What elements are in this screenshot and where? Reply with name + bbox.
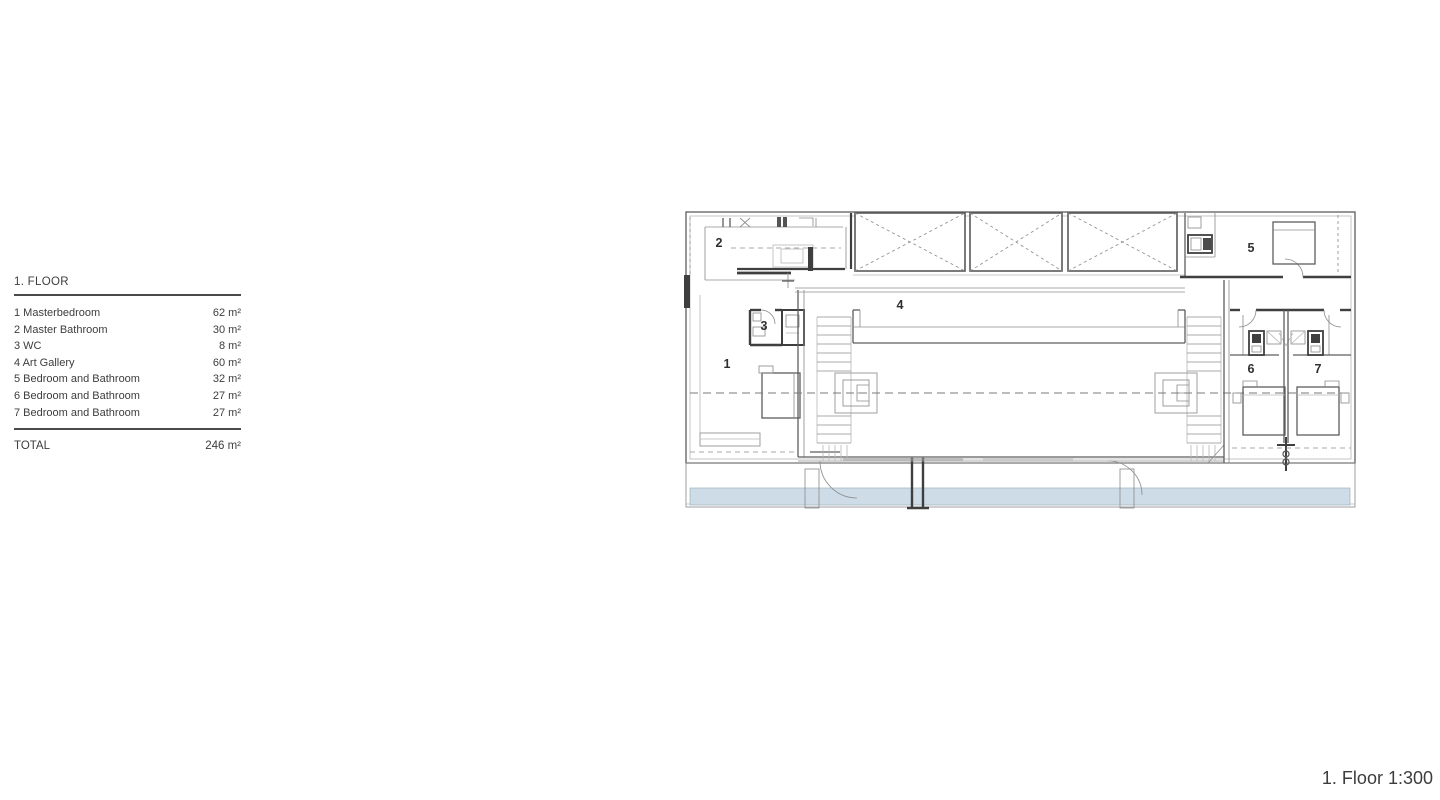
- schedule-rule-total: [14, 428, 241, 430]
- room-label-7: 7: [1315, 362, 1322, 376]
- schedule-title: 1. FLOOR: [14, 276, 241, 288]
- schedule-total-row: TOTAL 246 m²: [14, 438, 241, 454]
- room-area: 32 m²: [213, 371, 241, 388]
- room-area: 27 m²: [213, 388, 241, 405]
- room-area: 30 m²: [213, 322, 241, 339]
- room-name: 4 Art Gallery: [14, 355, 75, 372]
- room-label-1: 1: [724, 357, 731, 371]
- rooms-bedroom-6-7: [1230, 310, 1351, 471]
- drawing-sheet: 1. FLOOR 1 Masterbedroom 62 m² 2 Master …: [0, 0, 1440, 800]
- room-label-6: 6: [1248, 362, 1255, 376]
- exit-steps-east: [1191, 445, 1224, 463]
- skylight-row: [853, 213, 1185, 275]
- room-area: 60 m²: [213, 355, 241, 372]
- schedule-row: 7 Bedroom and Bathroom 27 m²: [14, 405, 241, 422]
- schedule-row: 5 Bedroom and Bathroom 32 m²: [14, 371, 241, 388]
- room-area: 8 m²: [219, 338, 241, 355]
- scale-caption: 1. Floor 1:300: [1322, 768, 1433, 789]
- room-name: 6 Bedroom and Bathroom: [14, 388, 140, 405]
- room-label-5: 5: [1248, 241, 1255, 255]
- room-label-2: 2: [716, 236, 723, 250]
- schedule-row: 2 Master Bathroom 30 m²: [14, 322, 241, 339]
- water-feature: [690, 457, 1350, 508]
- area-schedule: 1. FLOOR 1 Masterbedroom 62 m² 2 Master …: [14, 276, 241, 454]
- room-name: 7 Bedroom and Bathroom: [14, 405, 140, 422]
- room-area: 27 m²: [213, 405, 241, 422]
- room-master-bathroom: [684, 213, 851, 308]
- total-label: TOTAL: [14, 438, 50, 454]
- schedule-row: 4 Art Gallery 60 m²: [14, 355, 241, 372]
- room-label-3: 3: [761, 319, 768, 333]
- room-name: 3 WC: [14, 338, 42, 355]
- stair-east: [1187, 317, 1221, 443]
- floor-plan-drawing: [683, 205, 1358, 510]
- room-name: 1 Masterbedroom: [14, 305, 100, 322]
- schedule-rule-top: [14, 294, 241, 296]
- room-name: 2 Master Bathroom: [14, 322, 108, 339]
- room-wc: [750, 310, 804, 345]
- schedule-row: 3 WC 8 m²: [14, 338, 241, 355]
- room-label-4: 4: [897, 298, 904, 312]
- lift-west: [835, 373, 877, 413]
- schedule-row: 6 Bedroom and Bathroom 27 m²: [14, 388, 241, 405]
- floor-plan: 1 2 3 4 5 6 7: [683, 205, 1358, 510]
- total-area: 246 m²: [205, 438, 241, 454]
- room-bedroom-5: [1180, 213, 1351, 277]
- room-area: 62 m²: [213, 305, 241, 322]
- schedule-row: 1 Masterbedroom 62 m²: [14, 305, 241, 322]
- room-name: 5 Bedroom and Bathroom: [14, 371, 140, 388]
